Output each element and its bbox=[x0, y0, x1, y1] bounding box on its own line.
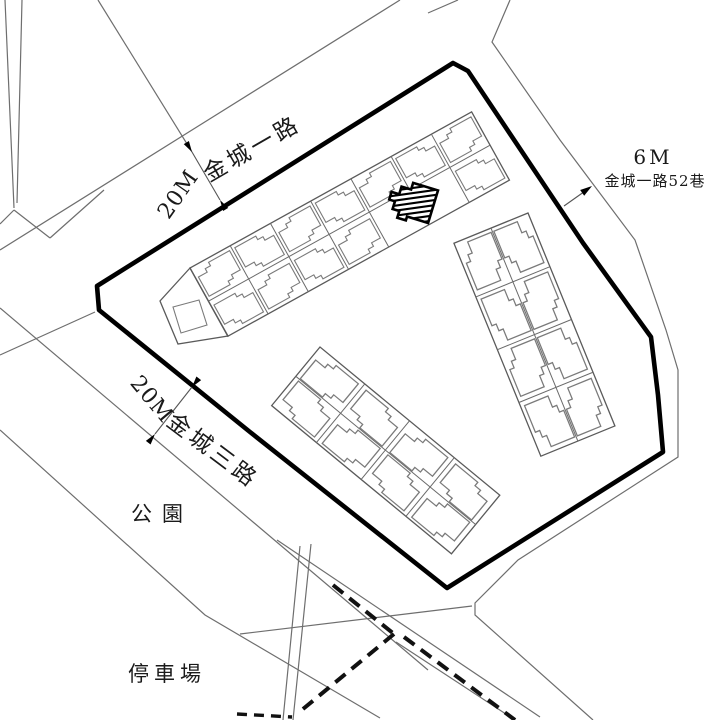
house-footprint bbox=[322, 418, 380, 474]
lane-width-label: 6M bbox=[633, 145, 672, 169]
lane-leader bbox=[564, 183, 594, 206]
lane-name-label: 金城一路52巷 bbox=[604, 172, 705, 190]
house-footprint bbox=[345, 390, 403, 446]
road-edge-line bbox=[277, 540, 540, 717]
house-footprint bbox=[173, 300, 207, 333]
road-name-jincheng-1st: 金城一路 bbox=[199, 111, 306, 188]
leader-arrowhead-icon bbox=[580, 183, 594, 196]
house-footprint bbox=[412, 492, 470, 548]
road-name-jincheng-3rd: 金城三路 bbox=[162, 408, 264, 494]
dashed-line bbox=[303, 634, 394, 709]
site-plan-page: 20M 金城一路 20M 金城三路 6M 金城一路52巷 公園 停車場 bbox=[0, 0, 722, 720]
house-footprint bbox=[559, 378, 609, 435]
subject-building-hatched bbox=[373, 168, 456, 243]
building-strip-middle bbox=[272, 347, 500, 554]
house-footprint bbox=[537, 325, 587, 382]
dimension-arrowhead-icon bbox=[184, 141, 195, 154]
dimension-extension-line bbox=[98, 0, 192, 152]
house-footprint bbox=[277, 381, 335, 437]
road-edge-line bbox=[240, 606, 472, 634]
lot-divider-lines bbox=[454, 213, 615, 456]
road-lines bbox=[0, 0, 678, 720]
park-label: 公園 bbox=[131, 502, 193, 526]
house-footprint bbox=[503, 339, 553, 396]
house-footprint bbox=[435, 464, 493, 520]
road-edge-line bbox=[0, 308, 428, 670]
lane-edge-line bbox=[475, 0, 678, 720]
dashed-line bbox=[404, 637, 515, 720]
house-footprint bbox=[494, 218, 544, 275]
road-edge-line bbox=[428, 0, 458, 13]
dashed-line bbox=[333, 585, 394, 634]
house-footprint bbox=[516, 272, 566, 329]
building-strip-east bbox=[454, 213, 615, 456]
site-plan-map: 20M 金城一路 20M 金城三路 6M 金城一路52巷 公園 停車場 bbox=[0, 0, 722, 720]
lot-divider-lines bbox=[272, 347, 500, 554]
road-edge-line bbox=[0, 0, 400, 250]
parking-lot-label: 停車場 bbox=[128, 662, 206, 686]
house-footprint bbox=[525, 393, 575, 450]
house-footprint bbox=[390, 427, 448, 483]
house-footprint bbox=[481, 286, 531, 343]
house-footprint bbox=[367, 455, 425, 511]
parcel-line bbox=[0, 0, 104, 238]
house-footprint bbox=[459, 232, 509, 289]
wedge-lot-west bbox=[160, 268, 228, 344]
road-width-label-jincheng-1st: 20M bbox=[153, 166, 204, 224]
strip-outline bbox=[160, 268, 228, 344]
dashed-boundary-lines bbox=[237, 585, 515, 720]
house-footprint bbox=[300, 353, 358, 409]
lane-edge-line bbox=[283, 544, 311, 720]
